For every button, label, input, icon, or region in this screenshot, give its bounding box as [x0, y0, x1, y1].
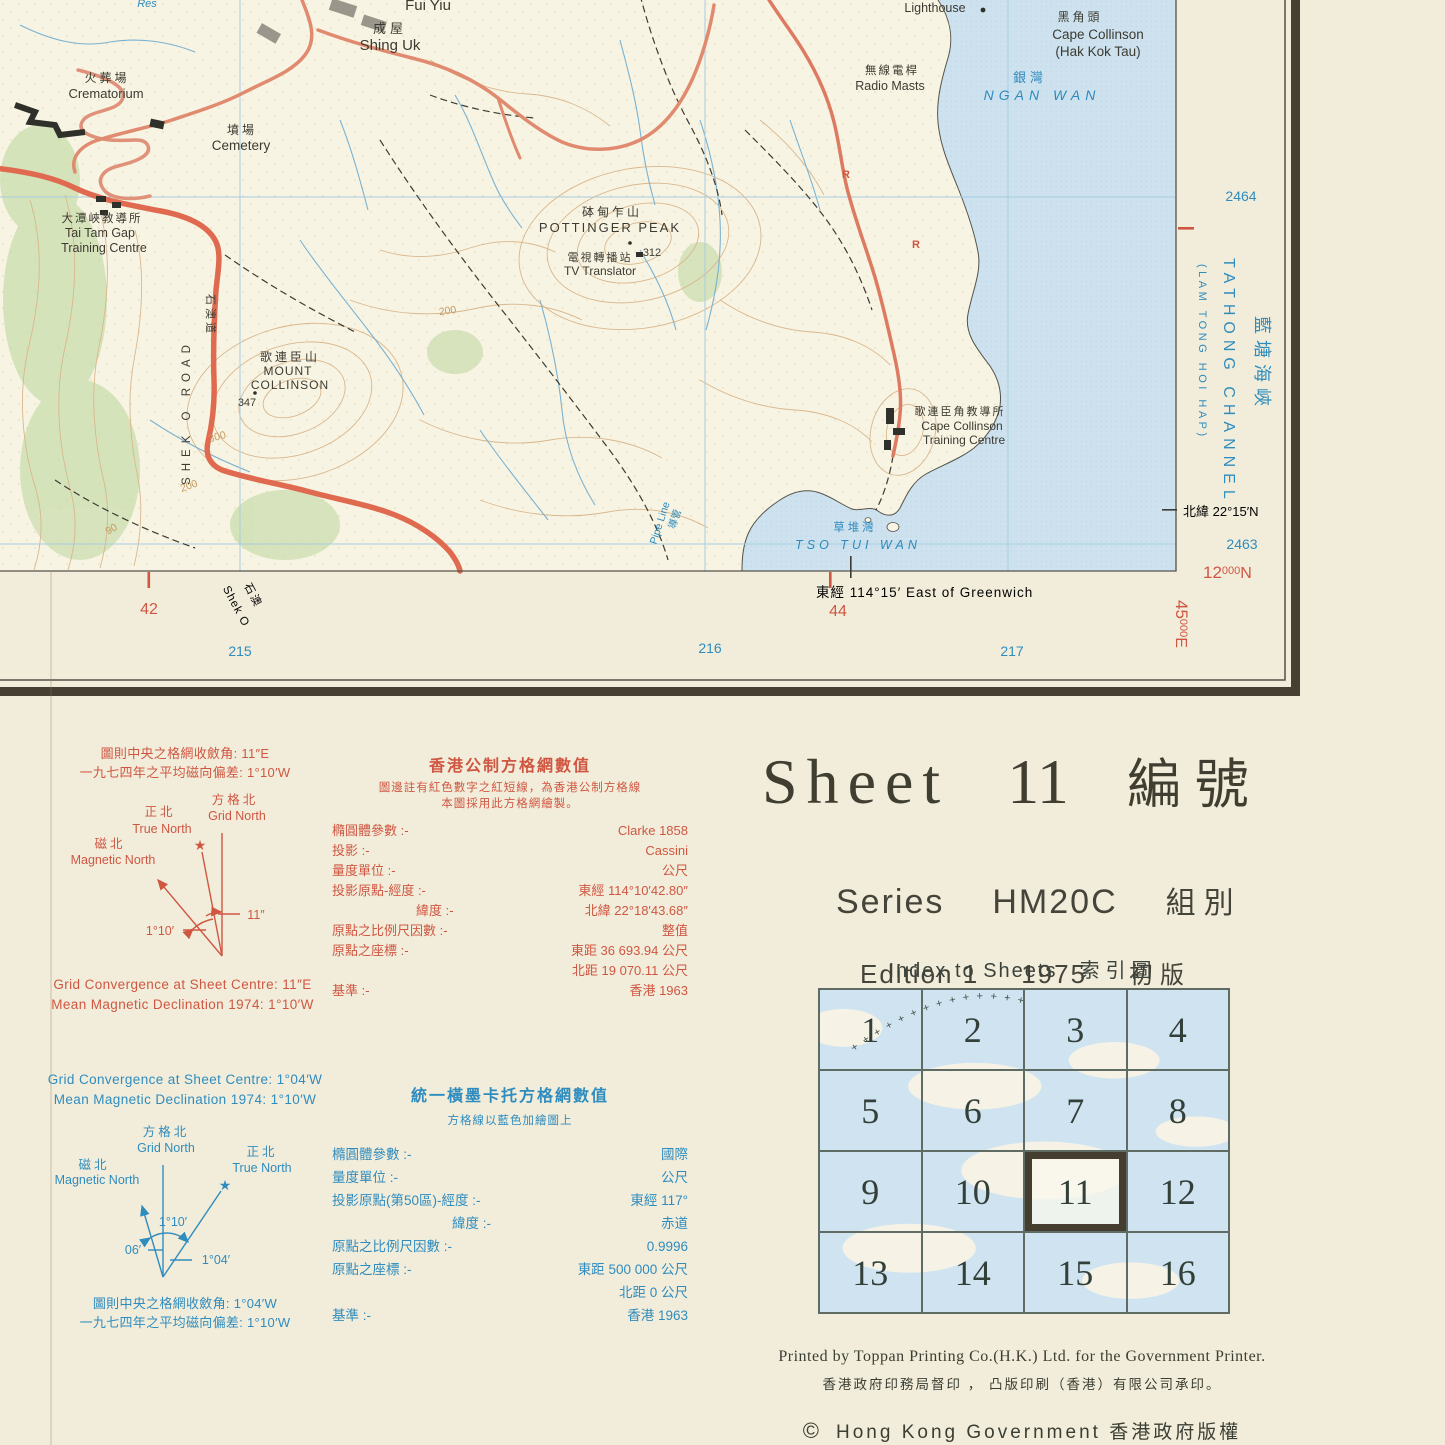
hk-north-diagram: ★ 方格北 Grid North 正北 True North 磁北 Magnet…: [10, 788, 350, 970]
row-label: 原點之座標 :-: [332, 1258, 412, 1281]
shek-o-road-label: SHEK O ROAD: [181, 339, 193, 485]
row-label: 投影原點(第50區)-經度 :-: [332, 1189, 481, 1212]
hk-conv-en-2: Mean Magnetic Declination 1974: 1°10′W: [0, 995, 365, 1015]
row-label: 投影原點-經度 :-: [332, 881, 426, 901]
index-heading-cjk: 索引圖: [1079, 960, 1157, 982]
row-value: 北距 0 公尺: [619, 1281, 688, 1304]
sheet-cjk: 編號: [1127, 740, 1263, 819]
index-cell-5: 5: [819, 1070, 922, 1151]
easting-42: 42: [140, 601, 158, 618]
table-row: 原點之座標 :-東距 500 000 公尺: [332, 1258, 688, 1281]
map-canvas: Res Fui Yiu 成屋 Shing Uk 火葬場 Crematorium …: [0, 0, 1445, 700]
table-row: 原點之比例尺因數 :-整值: [332, 921, 688, 941]
row-value: 東距 36 693.94 公尺: [571, 941, 688, 961]
table-row: 北距 19 070.11 公尺: [332, 961, 688, 981]
index-boundary-track: + + + + + + + + + + + + + +: [846, 990, 1146, 1062]
cape-collinson-line1: Cape Collinson: [1052, 27, 1144, 42]
row-label: 量度單位 :-: [332, 1166, 398, 1189]
hk-easting-45000E: 45000E: [1172, 600, 1191, 648]
utm-conv-en-1: Grid Convergence at Sheet Centre: 1°04′W: [0, 1070, 370, 1090]
northing-unit: N: [1240, 565, 1252, 582]
hk-magnetic-north-label: Magnetic North: [71, 853, 156, 867]
row-label: 橢圓體參數 :-: [332, 1143, 412, 1166]
tai-tam-line1: Tai Tam Gap: [65, 226, 135, 240]
index-cell-7: 7: [1024, 1070, 1127, 1151]
imprint-printer-en: Printed by Toppan Printing Co.(H.K.) Ltd…: [742, 1348, 1302, 1366]
hk-true-north-cjk: 正北: [144, 805, 175, 819]
latitude-label: 北緯 22°15′N: [1183, 504, 1259, 519]
row-label: 投影 :-: [332, 841, 370, 861]
hk-grid-north-cjk: 方格北: [212, 792, 259, 807]
row-label: 量度單位 :-: [332, 861, 396, 881]
channel-name-alt: (LAM TONG HOI HAP): [1196, 264, 1208, 440]
mount-collinson-line1: MOUNT: [264, 364, 313, 378]
utm-true-north-cjk: 正北: [246, 1145, 277, 1159]
cct-cjk: 歌連臣角教導所: [915, 404, 1006, 418]
row-value: Clarke 1858: [618, 821, 688, 841]
row-value: 香港 1963: [629, 981, 688, 1001]
islet: [887, 523, 899, 532]
utm-true-north-label: True North: [232, 1161, 291, 1175]
boundary-crosses: + + + + + + + + + + + + + +: [849, 990, 1027, 1054]
utm-north-diagram: ★ 方格北 Grid North 正北 True North 磁北 Magnet…: [10, 1122, 350, 1294]
crematorium-cjk: 火葬場: [84, 71, 129, 85]
channel-name-cjk: 藍塘海峽: [1252, 316, 1272, 412]
easting-44: 44: [829, 603, 847, 620]
hk-conv-cjk-1: 圖則中央之格網收斂角: 11″E: [10, 744, 360, 763]
hk-conv-en-1: Grid Convergence at Sheet Centre: 11″E: [0, 975, 365, 995]
utm-grid-table: 統一橫墨卡托方格網數值 方格線以藍色加繪圖上 橢圓體參數 :-國際 量度單位 :…: [332, 1082, 688, 1327]
table-row: 基準 :-香港 1963: [332, 981, 688, 1001]
res-label: Res: [137, 0, 157, 10]
hk-grid-title: 香港公制方格網數值: [332, 752, 688, 776]
series-cjk: 組別: [1166, 878, 1242, 922]
hk-grid-sub2: 本圖採用此方格網繪製。: [332, 796, 688, 812]
copyright-text: Hong Kong Government 香港政府版權: [836, 1422, 1241, 1443]
hk-northing-12000N: 12000N: [1203, 563, 1252, 582]
sheet-label: Sheet: [762, 745, 949, 819]
series-code: HM20C: [992, 883, 1117, 922]
table-row: 緯度 :-赤道: [332, 1212, 688, 1235]
shing-uk-label: Shing Uk: [360, 37, 421, 54]
row-label: 橢圓體參數 :-: [332, 821, 409, 841]
index-cell-9: 9: [819, 1151, 922, 1232]
row-value: 北緯 22°18′43.68″: [585, 901, 688, 921]
contour-label-200b: 200: [438, 304, 457, 318]
longitude-label: 東經 114°15′ East of Greenwich: [816, 585, 1033, 600]
utm-conv-en-2: Mean Magnetic Declination 1974: 1°10′W: [0, 1090, 370, 1110]
index-cell-11-current: 11: [1024, 1151, 1127, 1232]
index-cell-15: 15: [1024, 1232, 1127, 1313]
tv-translator-cjk: 電視轉播站: [568, 250, 633, 264]
hk-true-north-label: True North: [132, 822, 191, 836]
utm-easting-217: 217: [1000, 643, 1024, 659]
index-cell-16: 16: [1127, 1232, 1230, 1313]
utm-grid-north-label: Grid North: [137, 1141, 195, 1155]
hk-grid-north-label: Grid North: [208, 809, 266, 823]
hk-magnetic-north-cjk: 磁北: [94, 836, 125, 851]
hk-grid-sub1: 圖邊註有紅色數字之紅短線，為香港公制方格線: [332, 780, 688, 796]
northing-main: 12: [1203, 563, 1222, 582]
row-value: 公尺: [662, 861, 688, 881]
utm-easting-216: 216: [698, 640, 722, 656]
index-cell-12: 12: [1127, 1151, 1230, 1232]
row-value: 公尺: [661, 1166, 688, 1189]
northing-small: 000: [1222, 565, 1240, 577]
utm-northing-2463: 2463: [1226, 536, 1257, 552]
row-value: 東經 114°10′42.80″: [578, 881, 688, 901]
shek-o-road-cjk: 石澳道: [204, 294, 218, 336]
row-value: 0.9996: [647, 1235, 688, 1258]
utm-grid-north-cjk: 方格北: [143, 1124, 190, 1139]
table-row: 北距 0 公尺: [332, 1281, 688, 1304]
table-row: 橢圓體參數 :-Clarke 1858: [332, 821, 688, 841]
row-label: 基準 :-: [332, 981, 370, 1001]
cemetery-cjk: 墳場: [227, 123, 257, 137]
table-row: 基準 :-香港 1963: [332, 1304, 688, 1327]
crematorium-label: Crematorium: [68, 86, 143, 101]
index-heading-en: Index to Sheets: [889, 960, 1058, 982]
copyright-icon: ©: [803, 1418, 822, 1443]
mount-collinson-line2: COLLINSON: [251, 378, 329, 392]
shek-o-margin-cjk: 石澳: [241, 581, 265, 610]
index-cell-10: 10: [922, 1151, 1025, 1232]
mount-collinson-elevation: 347: [238, 397, 256, 409]
table-row: 量度單位 :-公尺: [332, 861, 688, 881]
imprint-printer-cjk: 香港政府印務局督印 ， 凸版印刷（香港）有限公司承印。: [742, 1373, 1302, 1393]
ngan-wan-cjk: 銀灣: [1013, 70, 1047, 85]
table-row: 原點之比例尺因數 :-0.9996: [332, 1235, 688, 1258]
index-cell-14: 14: [922, 1232, 1025, 1313]
hk-grid-table: 香港公制方格網數值 圖邊註有紅色數字之紅短線，為香港公制方格線 本圖採用此方格網…: [332, 752, 688, 1001]
radio-masts-cjk: 無線電桿: [865, 63, 919, 77]
cemetery-label: Cemetery: [212, 138, 271, 153]
radio-masts-label: Radio Masts: [855, 79, 924, 93]
fui-yiu-label: Fui Yiu: [405, 0, 451, 14]
imprint: Printed by Toppan Printing Co.(H.K.) Ltd…: [742, 1348, 1302, 1444]
lighthouse-label: Lighthouse: [904, 1, 965, 15]
ngan-wan-label: NGAN WAN: [984, 87, 1101, 103]
hk-angle-convergence: 11″: [247, 908, 265, 922]
series-line: Series HM20C 組別: [836, 878, 1242, 922]
utm-grid-title: 統一橫墨卡托方格網數值: [332, 1082, 688, 1106]
utm-angle-magnetic: 06′: [125, 1243, 142, 1257]
shing-uk-cjk: 成屋: [373, 21, 407, 36]
series-label: Series: [836, 883, 944, 922]
cape-collinson-line2: (Hak Kok Tau): [1055, 44, 1140, 59]
index-heading: Index to Sheets索引圖: [818, 954, 1228, 983]
pottinger-label: POTTINGER PEAK: [539, 220, 681, 235]
row-value: 東經 117°: [630, 1189, 688, 1212]
map-sheet: Res Fui Yiu 成屋 Shing Uk 火葬場 Crematorium …: [0, 0, 1445, 1445]
sheet-title: Sheet 11 編號: [762, 740, 1263, 819]
tso-tui-wan-cjk: 草堆灣: [833, 521, 877, 534]
channel-name-en: TATHONG CHANNEL: [1220, 258, 1237, 505]
cct-line1: Cape Collinson: [921, 419, 1002, 433]
utm-declination-header: Grid Convergence at Sheet Centre: 1°04′W…: [0, 1070, 370, 1110]
utm-conv-cjk-2: 一九七四年之平均磁向偏差: 1°10′W: [10, 1313, 360, 1332]
cape-collinson-cjk: 黑角頭: [1057, 10, 1102, 24]
table-row: 投影原點-經度 :-東經 114°10′42.80″: [332, 881, 688, 901]
table-row: 橢圓體參數 :-國際: [332, 1143, 688, 1166]
pottinger-cjk: 砵甸乍山: [582, 204, 642, 219]
easting-small: 000: [1177, 619, 1189, 637]
hk-declination-header: 圖則中央之格網收斂角: 11″E 一九七四年之平均磁向偏差: 1°10′W: [10, 744, 360, 782]
table-row: 原點之座標 :-東距 36 693.94 公尺: [332, 941, 688, 961]
true-north-star-icon: ★: [194, 837, 207, 853]
easting-main: 45: [1172, 600, 1191, 619]
utm-angle-declination: 1°10′: [159, 1215, 188, 1229]
row-label: 原點之比例尺因數 :-: [332, 1235, 452, 1258]
utm-grid-sub: 方格線以藍色加繪圖上: [332, 1113, 688, 1129]
utm-angle-convergence: 1°04′: [202, 1253, 231, 1267]
tv-translator-label: TV Translator: [564, 264, 636, 278]
row-value: 香港 1963: [627, 1304, 688, 1327]
row-label: 緯度 :-: [332, 1212, 491, 1235]
index-cell-8: 8: [1127, 1070, 1230, 1151]
route-marker-r2: R: [912, 239, 920, 251]
pottinger-elevation: 312: [643, 247, 661, 259]
imprint-copyright: ©Hong Kong Government 香港政府版權: [742, 1417, 1302, 1444]
index-cell-13: 13: [819, 1232, 922, 1313]
utm-magnetic-north-label: Magnetic North: [55, 1173, 140, 1187]
tai-tam-cjk: 大潭峽教導所: [62, 211, 143, 225]
row-value: 國際: [661, 1143, 688, 1166]
utm-easting-215: 215: [228, 643, 252, 659]
utm-northing-2464: 2464: [1225, 188, 1256, 204]
cct-line2: Training Centre: [923, 433, 1006, 447]
easting-unit: E: [1172, 637, 1189, 648]
utm-conv-cjk-1: 圖則中央之格網收斂角: 1°04′W: [10, 1294, 360, 1313]
sheet-number: 11: [1007, 745, 1069, 819]
row-value: 赤道: [661, 1212, 688, 1235]
utm-magnetic-north-cjk: 磁北: [78, 1157, 109, 1172]
row-label: 原點之座標 :-: [332, 941, 409, 961]
row-value: 北距 19 070.11 公尺: [572, 961, 688, 981]
row-value: Cassini: [645, 841, 688, 861]
table-row: 投影原點(第50區)-經度 :-東經 117°: [332, 1189, 688, 1212]
row-label: 基準 :-: [332, 1304, 371, 1327]
mount-collinson-cjk: 歌連臣山: [260, 349, 320, 364]
hk-angle-declination: 1°10′: [146, 924, 175, 938]
index-cell-6: 6: [922, 1070, 1025, 1151]
hk-conv-cjk-2: 一九七四年之平均磁向偏差: 1°10′W: [10, 763, 360, 782]
route-marker-r1: R: [842, 169, 850, 181]
tso-tui-wan-label: TSO TUI WAN: [795, 538, 921, 552]
true-north-star-icon: ★: [219, 1177, 232, 1193]
hk-declination-footer: Grid Convergence at Sheet Centre: 11″E M…: [0, 975, 365, 1015]
table-row: 量度單位 :-公尺: [332, 1166, 688, 1189]
row-value: 東距 500 000 公尺: [578, 1258, 688, 1281]
row-label: 緯度 :-: [332, 901, 454, 921]
row-label: 原點之比例尺因數 :-: [332, 921, 448, 941]
table-row: 緯度 :-北緯 22°18′43.68″: [332, 901, 688, 921]
tai-tam-line2: Training Centre: [61, 241, 147, 255]
svg-text:+ + + + + + + + + + + + + +: + + + + + + + + + + + + + +: [849, 990, 1027, 1054]
row-value: 整值: [662, 921, 688, 941]
utm-declination-footer: 圖則中央之格網收斂角: 1°04′W 一九七四年之平均磁向偏差: 1°10′W: [10, 1294, 360, 1332]
table-row: 投影 :-Cassini: [332, 841, 688, 861]
